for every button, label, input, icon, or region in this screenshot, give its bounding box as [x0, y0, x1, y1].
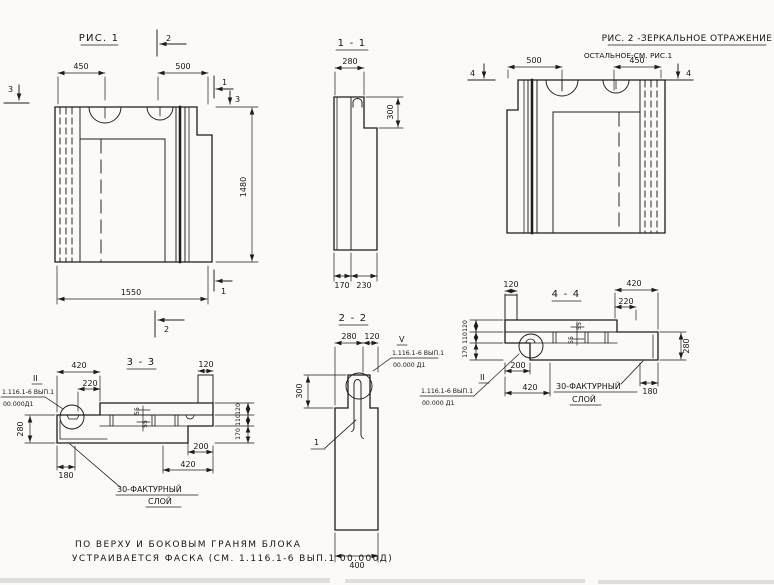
section-mark-1-bottom: 1	[214, 270, 232, 296]
section-mark-1-top-label: 1	[222, 78, 227, 87]
svg-text:420: 420	[180, 460, 195, 469]
section-4-4-dim-220: 220	[615, 297, 636, 320]
section-4-4-protrusion	[505, 295, 517, 320]
detail-mark-II: II	[480, 373, 485, 382]
section-mark-3-right-label: 3	[235, 95, 240, 104]
section-3-3-protrusion	[198, 375, 213, 403]
section-3-3-title: 3 - 3	[127, 357, 156, 368]
joint-keys	[553, 332, 608, 343]
svg-text:55: 55	[576, 322, 583, 330]
section-mark-4-right-label: 4	[686, 69, 691, 78]
svg-text:500: 500	[526, 56, 541, 65]
loop-mark-label: 1	[314, 438, 319, 447]
section-3-3-dim-280: 280	[16, 415, 55, 443]
facing-layer-note-2: СЛОЙ	[148, 495, 172, 506]
footer-note: ПО ВЕРХУ И БОКОВЫМ ГРАНЯМ БЛОКА УСТРАИВА…	[72, 540, 393, 564]
detail-callout-II: II 1.116.1-6 ВЫП.1 00.000Д1	[1, 374, 63, 409]
svg-text:120: 120	[364, 332, 379, 341]
stack-dim-120: 120	[462, 320, 469, 332]
svg-text:450: 450	[629, 56, 644, 65]
figure-1: РИС. 1 2 450 500 1 3	[4, 30, 258, 337]
figure-2: РИС. 2 -ЗЕРКАЛЬНОЕ ОТРАЖЕНИЕ ОСТАЛЬНОЕ-С…	[468, 34, 772, 233]
figure-2-dim-500: 500	[508, 56, 562, 90]
detail-circle-II	[519, 334, 543, 358]
svg-text:220: 220	[618, 297, 633, 306]
facing-layer-note-1: 30-ФАКТУРНЫЙ	[556, 380, 621, 391]
stack-dim-110: 110	[235, 414, 242, 426]
svg-text:280: 280	[341, 332, 356, 341]
svg-text:280: 280	[682, 338, 691, 353]
section-1-1-dim-280: 280	[335, 57, 364, 95]
stack-dim-120: 120	[235, 403, 242, 415]
section-3-3-dim-220: 220	[78, 379, 100, 411]
figure-2-title: РИС. 2 -ЗЕРКАЛЬНОЕ ОТРАЖЕНИЕ	[602, 34, 773, 44]
svg-text:300: 300	[386, 104, 395, 119]
section-1-1-dim-300: 300	[366, 97, 403, 128]
stack-dim-110: 110	[462, 332, 469, 344]
section-3-3-dim-55: 55 55	[134, 406, 150, 431]
section-1-1-dims-bottom: 170 230	[334, 253, 377, 290]
detail-mark-II: II	[33, 374, 38, 383]
section-mark-2-top-label: 2	[166, 34, 171, 43]
section-1-1-title: 1 - 1	[338, 38, 367, 49]
section-1-1: 1 - 1 280 300 170 230	[334, 38, 403, 290]
section-mark-3-right: 3	[230, 91, 240, 104]
svg-text:220: 220	[82, 379, 97, 388]
svg-text:1550: 1550	[121, 288, 141, 297]
svg-text:120: 120	[198, 360, 213, 369]
detail-circle-II	[60, 405, 84, 429]
section-3-3: 3 - 3 420 220 120 55 55 II	[1, 357, 254, 507]
section-mark-4-left: 4	[468, 64, 495, 80]
section-2-2-dim-120: 120	[363, 332, 380, 372]
section-3-3-stack-dims: 120 110 170	[215, 403, 254, 443]
section-4-4-dim-55: 55 55	[568, 322, 584, 345]
callout-series: 1.116.1-6 ВЫП.1	[421, 388, 473, 395]
section-3-3-dim-180: 180	[57, 446, 75, 480]
loop-position-mark: 1	[311, 420, 356, 449]
svg-text:500: 500	[175, 62, 190, 71]
figure-1-block-outline	[55, 107, 212, 262]
section-mark-4-left-label: 4	[470, 69, 475, 78]
dim-170: 170	[334, 281, 349, 290]
stack-dim-170: 170	[462, 346, 469, 358]
detail-circle-V	[346, 373, 372, 399]
section-4-4-dim-180: 180	[640, 363, 658, 396]
loop-hooks	[352, 428, 364, 439]
section-mark-1-bottom-label: 1	[221, 287, 226, 296]
svg-text:1480: 1480	[239, 177, 248, 197]
section-mark-2-top: 2	[157, 30, 186, 56]
section-mark-3-left: 3	[4, 85, 29, 103]
svg-text:180: 180	[642, 387, 657, 396]
svg-text:55: 55	[568, 336, 575, 344]
svg-text:120: 120	[503, 280, 518, 289]
section-2-2: 2 - 2 280 120 300 V 1.116.1-6 ВЫП.1 00.0…	[295, 313, 444, 570]
footer-note-line-2: УСТРАИВАЕТСЯ ФАСКА (СМ. 1.116.1-6 ВЫП.1 …	[72, 554, 393, 564]
figure-2-block-outline	[507, 80, 665, 233]
loop-cross-section	[353, 99, 362, 108]
svg-text:200: 200	[510, 361, 525, 370]
section-4-4: 4 - 4 120 420 220 55 55 II	[420, 279, 691, 407]
keyway-notch	[186, 415, 194, 419]
section-3-3-dim-120-top: 120	[198, 360, 214, 371]
section-mark-2-bottom: 2	[155, 311, 184, 337]
hidden-lines	[60, 108, 72, 262]
figure-2-subtitle: ОСТАЛЬНОЕ-СМ. РИС.1	[584, 51, 673, 60]
svg-text:280: 280	[16, 421, 25, 436]
technical-drawing: РИС. 1 2 450 500 1 3	[0, 0, 774, 585]
detail-mark-V: V	[399, 335, 405, 344]
section-2-2-outline	[335, 375, 378, 530]
figure-2-dim-450: 450	[614, 56, 661, 90]
facing-layer-leader	[70, 444, 120, 487]
callout-series: 1.116.1-6 ВЫП.1	[2, 389, 54, 396]
section-mark-3-left-label: 3	[8, 85, 13, 94]
section-2-2-dim-400: 400	[335, 533, 378, 570]
detail-callout-V: V 1.116.1-6 ВЫП.1 00.000 Д1	[373, 335, 444, 371]
footer-note-line-1: ПО ВЕРХУ И БОКОВЫМ ГРАНЯМ БЛОКА	[75, 540, 301, 550]
detail-callout-II: II 1.116.1-6 ВЫП.1 00.000 Д1	[420, 354, 519, 407]
section-1-1-outline	[334, 97, 377, 250]
section-2-2-title: 2 - 2	[339, 313, 368, 324]
figure-1-dim-1550: 1550	[57, 266, 208, 304]
figure-1-title: РИС. 1	[79, 33, 119, 44]
figure-1-dim-1480: 1480	[216, 107, 258, 262]
hidden-lines	[645, 81, 657, 233]
dim-230: 230	[356, 281, 371, 290]
svg-text:280: 280	[342, 57, 357, 66]
figure-1-dim-450: 450	[58, 62, 105, 104]
section-mark-2-bottom-label: 2	[164, 325, 169, 334]
facing-layer-note-2: СЛОЙ	[572, 393, 596, 404]
svg-text:300: 300	[295, 383, 304, 398]
svg-text:200: 200	[193, 442, 208, 451]
blueprint-page: РИС. 1 2 450 500 1 3	[0, 0, 774, 585]
section-4-4-dim-280: 280	[660, 332, 691, 360]
svg-text:420: 420	[522, 383, 537, 392]
svg-text:55: 55	[134, 407, 141, 415]
section-2-2-dim-300: 300	[295, 375, 346, 408]
section-4-4-stack-dims: 120 110 170	[462, 320, 503, 360]
section-4-4-dim-200: 200	[505, 361, 530, 374]
callout-sheet: 00.000 Д1	[422, 400, 454, 407]
facing-layer-note-1: 30-ФАКТУРНЫЙ	[117, 483, 182, 494]
svg-text:450: 450	[73, 62, 88, 71]
scan-artifact	[0, 578, 774, 584]
section-4-4-title: 4 - 4	[552, 289, 581, 300]
section-3-3-dim-200: 200	[188, 429, 213, 455]
svg-text:420: 420	[626, 279, 641, 288]
lifting-loop-wire	[354, 380, 361, 436]
section-mark-4-right: 4	[666, 64, 693, 80]
facing-layer-line	[60, 421, 107, 439]
figure-1-dim-500: 500	[158, 62, 208, 104]
figure-2-inner-rect	[553, 112, 640, 233]
svg-text:180: 180	[58, 471, 73, 480]
callout-sheet: 00.000Д1	[3, 401, 33, 408]
stack-dim-170: 170	[235, 428, 242, 440]
callout-series: 1.116.1-6 ВЫП.1	[392, 350, 444, 357]
svg-text:420: 420	[71, 361, 86, 370]
svg-text:55: 55	[142, 420, 149, 428]
callout-sheet: 00.000 Д1	[393, 362, 425, 369]
figure-1-inner-rect	[80, 139, 165, 262]
